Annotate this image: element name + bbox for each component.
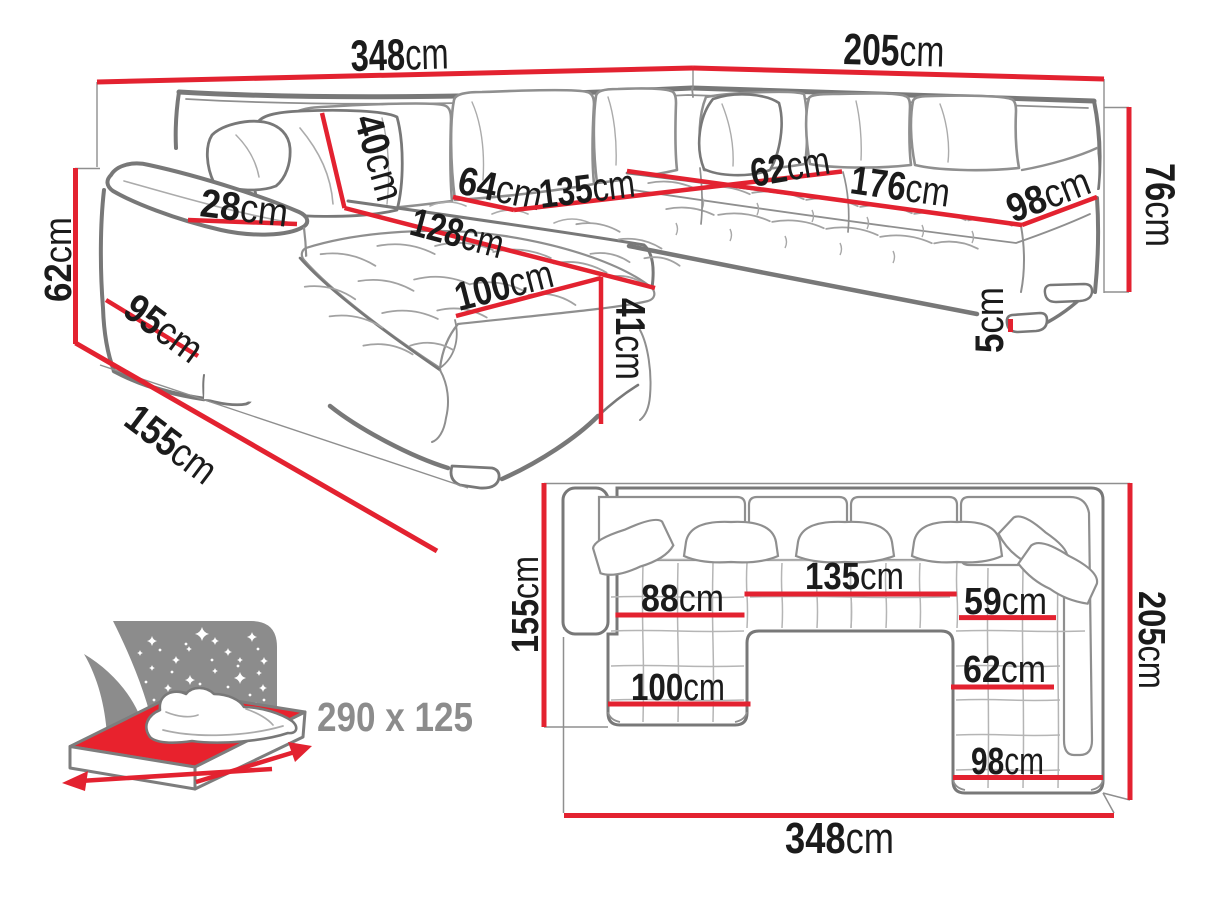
- svg-text:41cm: 41cm: [607, 298, 654, 380]
- svg-text:348cm: 348cm: [785, 814, 894, 863]
- svg-text:205cm: 205cm: [1130, 591, 1172, 689]
- svg-text:76cm: 76cm: [1137, 163, 1184, 247]
- svg-text:155cm: 155cm: [505, 556, 547, 653]
- svg-text:98cm: 98cm: [971, 741, 1044, 783]
- svg-text:290 x 125: 290 x 125: [317, 694, 473, 740]
- svg-text:135cm: 135cm: [805, 556, 904, 598]
- svg-text:348cm: 348cm: [350, 29, 449, 81]
- svg-text:62cm: 62cm: [963, 649, 1046, 691]
- svg-text:5cm: 5cm: [968, 287, 1012, 353]
- svg-text:59cm: 59cm: [964, 581, 1047, 623]
- svg-text:88cm: 88cm: [641, 578, 724, 620]
- svg-text:205cm: 205cm: [843, 25, 945, 77]
- svg-text:100cm: 100cm: [631, 667, 725, 709]
- svg-text:62cm: 62cm: [38, 217, 80, 302]
